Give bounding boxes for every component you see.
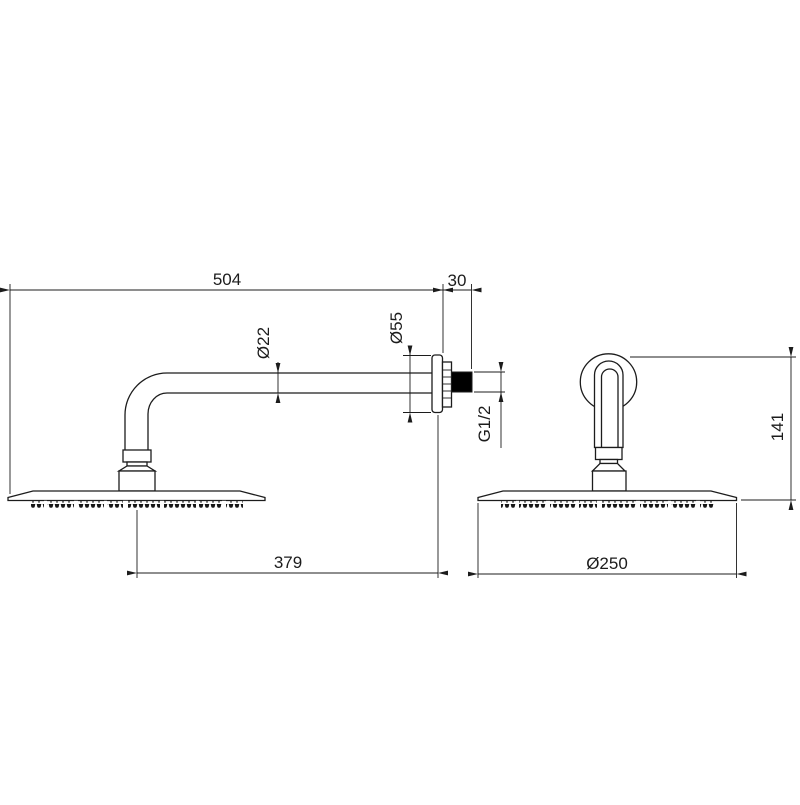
dim-projection: 504 xyxy=(10,270,443,494)
front-view xyxy=(478,354,737,509)
drawing-page: 504 30 Ø22 Ø55 xyxy=(0,0,800,800)
shower-arm-inner-line xyxy=(148,393,433,450)
thread-nipple xyxy=(452,372,473,392)
dim-pipe-diameter-label: Ø22 xyxy=(254,327,273,359)
arm-nut xyxy=(123,450,151,462)
head-plate-front xyxy=(478,491,737,501)
dim-thread-size-label: G1/2 xyxy=(475,406,494,443)
dim-drop-height: 141 xyxy=(630,357,796,500)
dim-drop-height-label: 141 xyxy=(768,413,787,441)
shower-arm-outline xyxy=(125,373,433,450)
dim-wall-offset: 30 xyxy=(443,271,472,369)
arm-nut-front xyxy=(596,448,623,460)
dim-head-offset-label: 379 xyxy=(274,553,302,572)
arm-front-outline xyxy=(595,361,624,448)
dimensions: 504 30 Ø22 Ø55 xyxy=(10,270,796,578)
nozzle-row xyxy=(31,501,243,508)
dim-pipe-diameter: Ø22 xyxy=(254,327,278,393)
head-plate-side xyxy=(8,491,265,501)
technical-drawing: 504 30 Ø22 Ø55 xyxy=(0,0,800,800)
head-hub-front xyxy=(593,471,627,491)
arm-skirt-front xyxy=(593,464,626,472)
flange-collar xyxy=(443,362,452,407)
dim-projection-label: 504 xyxy=(213,270,241,289)
dim-flange-diameter: Ø55 xyxy=(387,312,431,413)
arm-skirt xyxy=(119,466,155,471)
side-view xyxy=(8,355,472,509)
dim-wall-offset-label: 30 xyxy=(448,271,467,290)
nozzle-row-front xyxy=(501,501,714,508)
dim-thread-size: G1/2 xyxy=(474,372,505,448)
dim-head-diameter-label: Ø250 xyxy=(586,554,628,573)
head-hub xyxy=(119,471,155,491)
wall-flange xyxy=(432,355,443,413)
dim-head-diameter: Ø250 xyxy=(478,503,737,578)
dim-flange-diameter-label: Ø55 xyxy=(387,312,406,344)
